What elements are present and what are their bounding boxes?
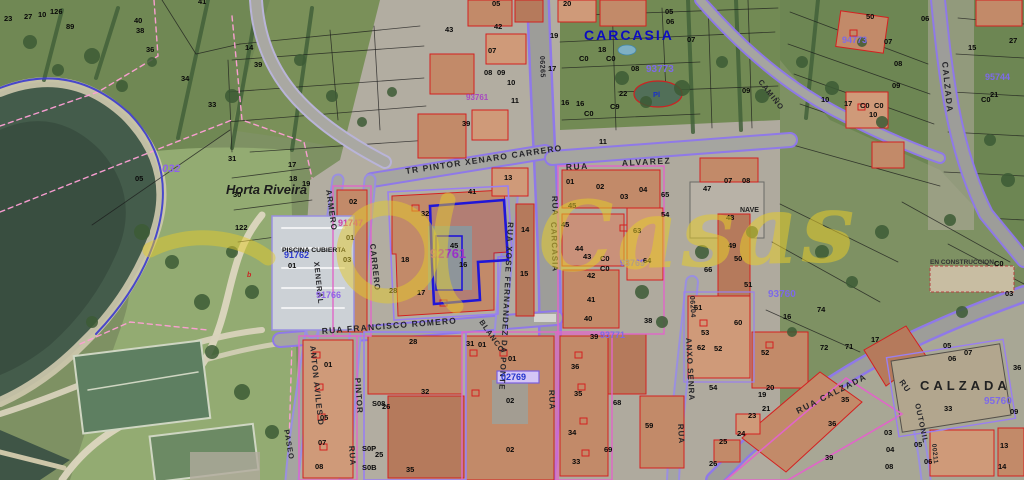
place-label: b — [247, 272, 252, 279]
parcel-number: C0 — [860, 101, 870, 110]
parcel-number: 38 — [136, 26, 144, 35]
building[interactable] — [752, 332, 808, 388]
zone-code: 93760 — [768, 289, 796, 300]
building[interactable] — [418, 114, 466, 158]
parcel-number: 39 — [825, 453, 833, 462]
building[interactable] — [608, 334, 646, 394]
parcel-number: 27 — [24, 12, 32, 21]
tree — [695, 245, 709, 259]
parcel-number: 01 — [346, 233, 354, 242]
parcel-number: 06 — [948, 354, 956, 363]
parcel-number: 02 — [349, 197, 357, 206]
sports-court[interactable] — [74, 340, 211, 433]
parcel-number: 52 — [761, 348, 769, 357]
tree — [746, 226, 758, 238]
parcel-number: 08 — [484, 68, 492, 77]
parcel-number: 17 — [844, 99, 852, 108]
parcel-number: 47 — [703, 184, 711, 193]
parcel-number: 16 — [459, 260, 467, 269]
zone-code: 91762 — [284, 250, 309, 260]
tree — [23, 35, 37, 49]
parcel-number: 16 — [783, 312, 791, 321]
tree — [357, 117, 367, 127]
parcel-number: 14 — [521, 225, 530, 234]
parcel-number: 30 — [233, 190, 241, 199]
parcel-number: 31 — [466, 339, 474, 348]
parcel-number: 07 — [964, 348, 972, 357]
parcel-number: 41 — [468, 187, 476, 196]
place-label: EN CONSTRUCCION — [930, 259, 994, 266]
parcel-number: 74 — [817, 305, 826, 314]
place-label: NAVE — [740, 207, 759, 214]
parcel-number: 89 — [66, 22, 74, 31]
parcel-number: 48 — [726, 213, 734, 222]
parcel-number: 08 — [742, 176, 750, 185]
street-label: 06265 — [538, 56, 546, 78]
parcel-number: 61 — [694, 303, 702, 312]
parcel-number: 13 — [504, 173, 512, 182]
place-label: Pl — [653, 90, 660, 99]
parcel-number: 53 — [701, 328, 709, 337]
parcel-number: 69 — [604, 445, 612, 454]
parcel-number: 01 — [288, 261, 296, 270]
parcel-number: C0 — [994, 259, 1004, 268]
parcel-number: 17 — [417, 288, 425, 297]
crosswalk — [534, 314, 556, 322]
parcel-number: 39 — [590, 332, 598, 341]
parcel-number: 26 — [382, 402, 390, 411]
parcel-number: 22 — [619, 89, 627, 98]
parcel-number: 21 — [990, 90, 998, 99]
parcel-number: C0 — [600, 254, 610, 263]
parcel-number: 42 — [494, 22, 502, 31]
building[interactable] — [516, 204, 534, 316]
tree — [875, 225, 889, 239]
parcel-number: 45 — [561, 220, 569, 229]
street-label: RUA — [347, 446, 357, 467]
parcel-number: S0B — [362, 463, 377, 472]
parcel-number: 49 — [728, 241, 736, 250]
building[interactable] — [515, 0, 543, 22]
place-label: CARCASIA — [584, 27, 674, 43]
parcel-number: 17 — [288, 160, 296, 169]
parcel-number: 25 — [719, 437, 727, 446]
parcel-number: 03 — [343, 255, 351, 264]
parcel-number: 02 — [506, 445, 514, 454]
zone-code: 93771 — [600, 330, 625, 340]
parcel-number: 05 — [492, 0, 500, 8]
building[interactable] — [560, 336, 608, 476]
parcel-number: 39 — [254, 60, 262, 69]
parcel-number: 43 — [583, 252, 591, 261]
tree — [846, 276, 858, 288]
parcel-number: 24 — [737, 429, 746, 438]
parcel-number: 05 — [914, 440, 922, 449]
parcel-number: C0 — [874, 101, 884, 110]
parcel-number: 26 — [709, 459, 717, 468]
parcel-number: 34 — [568, 428, 577, 437]
parcel-number: 40 — [134, 16, 142, 25]
parcel-number: 126 — [50, 7, 63, 16]
tree — [84, 48, 100, 64]
tree — [815, 245, 829, 259]
parcel-number: 01 — [508, 354, 516, 363]
parcel-number: 18 — [401, 255, 409, 264]
parcel-number: 11 — [599, 137, 607, 146]
parcel-number: 11 — [511, 96, 519, 105]
parcel-number: 40 — [584, 314, 592, 323]
tree — [245, 285, 259, 299]
tree — [944, 214, 956, 226]
parcel-number: 35 — [574, 389, 582, 398]
parcel-number: 34 — [181, 74, 190, 83]
parcel-number: 18 — [598, 45, 606, 54]
parcel-number: 06 — [924, 457, 932, 466]
parcel-number: 71 — [845, 342, 853, 351]
parcel-number: 08 — [315, 462, 323, 471]
parcel-number: 64 — [643, 256, 652, 265]
tree — [796, 56, 808, 68]
parcel-number: 19 — [758, 390, 766, 399]
parcel-number: 17 — [871, 335, 879, 344]
parcel-number: 02 — [506, 396, 514, 405]
tree — [116, 80, 128, 92]
parcel-number: C0 — [584, 109, 594, 118]
parcel-number: 01 — [478, 340, 486, 349]
parcel-number: 52 — [714, 344, 722, 353]
tree — [787, 327, 797, 337]
building[interactable] — [562, 214, 624, 266]
parcel-number: 10 — [821, 95, 829, 104]
tree — [226, 246, 238, 258]
parcel-number: 05 — [320, 413, 328, 422]
parcel-number: 20 — [563, 0, 571, 8]
parcel-number: 33 — [208, 100, 216, 109]
zone-code: 91747 — [338, 218, 363, 228]
street-label: RUA — [550, 196, 560, 217]
tree — [86, 316, 98, 328]
parcel-number: 122 — [235, 223, 248, 232]
parcel-number: 15 — [968, 43, 976, 52]
parcel-number: 10 — [507, 78, 515, 87]
parcel-number: 05 — [135, 174, 143, 183]
building[interactable] — [600, 0, 646, 26]
parcel-number: 33 — [944, 404, 952, 413]
parcel-number: 41 — [198, 0, 206, 6]
tree — [387, 87, 397, 97]
tree — [52, 64, 64, 76]
parcel-number: 03 — [1005, 289, 1013, 298]
street-label: CARCASIA — [549, 222, 560, 273]
parcel-number: 39 — [462, 119, 470, 128]
tree — [194, 294, 210, 310]
parcel-number: 16 — [576, 99, 584, 108]
building[interactable] — [872, 142, 904, 168]
tree — [225, 89, 239, 103]
tree — [640, 96, 652, 108]
parcel-number: C9 — [610, 102, 620, 111]
parcel-number: 08 — [894, 59, 902, 68]
parcel-number: 28 — [409, 337, 417, 346]
parcel-number: 10 — [869, 110, 877, 119]
map-canvas[interactable]: TR PINTOR XENARO CARRERORUAALVAREZRUA FR… — [0, 0, 1024, 480]
parcel-number: 06 — [921, 14, 929, 23]
parcel-number: C0 — [981, 95, 991, 104]
parcel-number: 07 — [318, 438, 326, 447]
parcel-number: 36 — [146, 45, 154, 54]
parcel-number: 01 — [566, 177, 574, 186]
street-label: RUA — [547, 390, 557, 411]
parcel-number: 08 — [885, 462, 893, 471]
parcel-number: 42 — [587, 271, 595, 280]
tree — [265, 425, 279, 439]
street-label: RUA — [566, 161, 589, 172]
parcel-number: 72 — [820, 343, 828, 352]
parcel-number: 14 — [998, 462, 1007, 471]
cadastral-map-svg: TR PINTOR XENARO CARRERORUAALVAREZRUA FR… — [0, 0, 1024, 480]
parcel-number: 20 — [766, 383, 774, 392]
parcel-number: 07 — [687, 35, 695, 44]
small-pond[interactable] — [618, 45, 636, 55]
parcel-number: 66 — [704, 265, 712, 274]
parcel-number: 19 — [550, 31, 558, 40]
parcel-number: 25 — [375, 450, 383, 459]
zone-code: 032 — [162, 163, 180, 175]
parcel-number: 09 — [742, 86, 750, 95]
parcel-number: 05 — [943, 341, 951, 350]
zone-code: 93761 — [466, 93, 489, 102]
parcel-number: 14 — [245, 43, 254, 52]
building[interactable] — [388, 396, 464, 478]
parcel-number: 60 — [734, 318, 742, 327]
building[interactable] — [976, 0, 1022, 26]
en-construccion-slab[interactable] — [930, 266, 1014, 292]
zone-code: 02769 — [501, 372, 526, 382]
parcel-number: 50 — [734, 254, 742, 263]
tree — [825, 81, 839, 95]
parcel-number: 03 — [884, 428, 892, 437]
parcel-number: 35 — [406, 465, 414, 474]
tree — [134, 224, 150, 240]
zone-code: 95760 — [984, 396, 1012, 407]
parcel-number: 07 — [724, 176, 732, 185]
parcel-number: 02 — [596, 182, 604, 191]
building[interactable] — [430, 54, 474, 94]
street-label: RUA — [676, 424, 686, 445]
tree — [984, 134, 996, 146]
tree — [234, 384, 250, 400]
parcel-number: 32 — [421, 387, 429, 396]
parcel-number: 13 — [1000, 441, 1008, 450]
parcel-number: 17 — [548, 64, 556, 73]
zone-code: 91766 — [316, 290, 341, 300]
building[interactable] — [930, 430, 994, 476]
zone-code: 95744 — [985, 72, 1010, 82]
tree — [716, 56, 728, 68]
tree — [326, 90, 338, 102]
tree — [1001, 173, 1015, 187]
parcel-number: 23 — [748, 411, 756, 420]
parcel-number: 45 — [568, 201, 576, 210]
parcel-number: 08 — [631, 64, 639, 73]
parcel-number: 05 — [665, 7, 673, 16]
parcel-number: 07 — [884, 37, 892, 46]
parcel-number: 28 — [389, 286, 397, 295]
parcel-number: 04 — [639, 185, 648, 194]
parcel-number: 07 — [488, 46, 496, 55]
zone-code: 93773 — [646, 64, 674, 75]
tree — [674, 80, 690, 96]
parcel-number: 23 — [4, 14, 12, 23]
parcel-number: C0 — [606, 54, 616, 63]
tree — [876, 116, 888, 128]
parcel-number: 01 — [324, 360, 332, 369]
parcel-number: 15 — [520, 269, 528, 278]
parcel-number: 10 — [38, 10, 46, 19]
parcel-number: 19 — [302, 179, 310, 188]
parcel-number: 36 — [571, 362, 579, 371]
zone-code: 93769 — [620, 258, 645, 268]
place-label: CALZADA — [920, 378, 1011, 393]
tree — [165, 255, 179, 269]
tree — [615, 71, 629, 85]
parcel-number: 09 — [892, 81, 900, 90]
parcel-number: 38 — [644, 316, 652, 325]
parcel-number: 62 — [697, 343, 705, 352]
zone-code: 92761 — [430, 246, 466, 261]
tree — [205, 345, 219, 359]
parcel-number: 65 — [661, 190, 669, 199]
parcel-number: 50 — [866, 12, 874, 21]
parcel-number: 31 — [228, 154, 236, 163]
parcel-number: 04 — [886, 445, 895, 454]
tree — [656, 316, 668, 328]
parcel-number: 27 — [1009, 36, 1017, 45]
parcel-number: C0 — [579, 54, 589, 63]
parcel-number: 51 — [744, 280, 752, 289]
parcel-number: 54 — [709, 383, 718, 392]
parcel-number: 36 — [828, 419, 836, 428]
building[interactable] — [468, 0, 512, 26]
parcel-number: 54 — [661, 210, 670, 219]
parcel-number: 63 — [633, 226, 641, 235]
parcel-number: 68 — [613, 398, 621, 407]
parcel-number: 03 — [620, 192, 628, 201]
building[interactable] — [190, 452, 260, 480]
tree — [147, 57, 157, 67]
piscina-cubierta[interactable] — [272, 216, 354, 330]
parcel-number: 32 — [421, 209, 429, 218]
parcel-number: 36 — [1013, 363, 1021, 372]
parcel-number: 18 — [289, 174, 297, 183]
parcel-number: 09 — [1010, 407, 1018, 416]
building[interactable] — [627, 208, 663, 280]
parcel-number: 09 — [497, 68, 505, 77]
parcel-number: 59 — [645, 421, 653, 430]
tree — [635, 285, 649, 299]
tree — [956, 306, 968, 318]
parcel-number: 21 — [762, 404, 770, 413]
parcel-number: 45 — [450, 241, 458, 250]
zone-code: 94773 — [842, 35, 867, 45]
parcel-number: 41 — [587, 295, 595, 304]
building[interactable] — [472, 110, 508, 140]
parcel-number: 06 — [666, 17, 674, 26]
tree — [294, 54, 306, 66]
parcel-number: 43 — [445, 25, 453, 34]
parcel-number: C0 — [600, 264, 610, 273]
parcel-number: 33 — [572, 457, 580, 466]
parcel-number: 16 — [561, 98, 569, 107]
parcel-number: 35 — [841, 395, 849, 404]
